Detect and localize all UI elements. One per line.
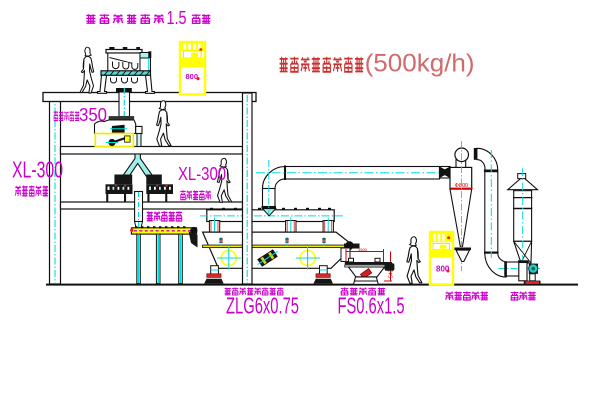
svg-text:FS0.6x1.5: FS0.6x1.5	[338, 293, 405, 319]
svg-text:XL-300: XL-300	[12, 157, 63, 183]
svg-text:(500kg/h): (500kg/h)	[365, 50, 475, 78]
svg-text:540: 540	[389, 269, 395, 278]
svg-text:1.5: 1.5	[167, 7, 187, 28]
svg-text:800: 800	[186, 72, 199, 81]
svg-text:XL-300: XL-300	[178, 163, 226, 184]
svg-text:1500: 1500	[358, 247, 368, 252]
svg-text:ZLG6x0.75: ZLG6x0.75	[226, 293, 299, 319]
